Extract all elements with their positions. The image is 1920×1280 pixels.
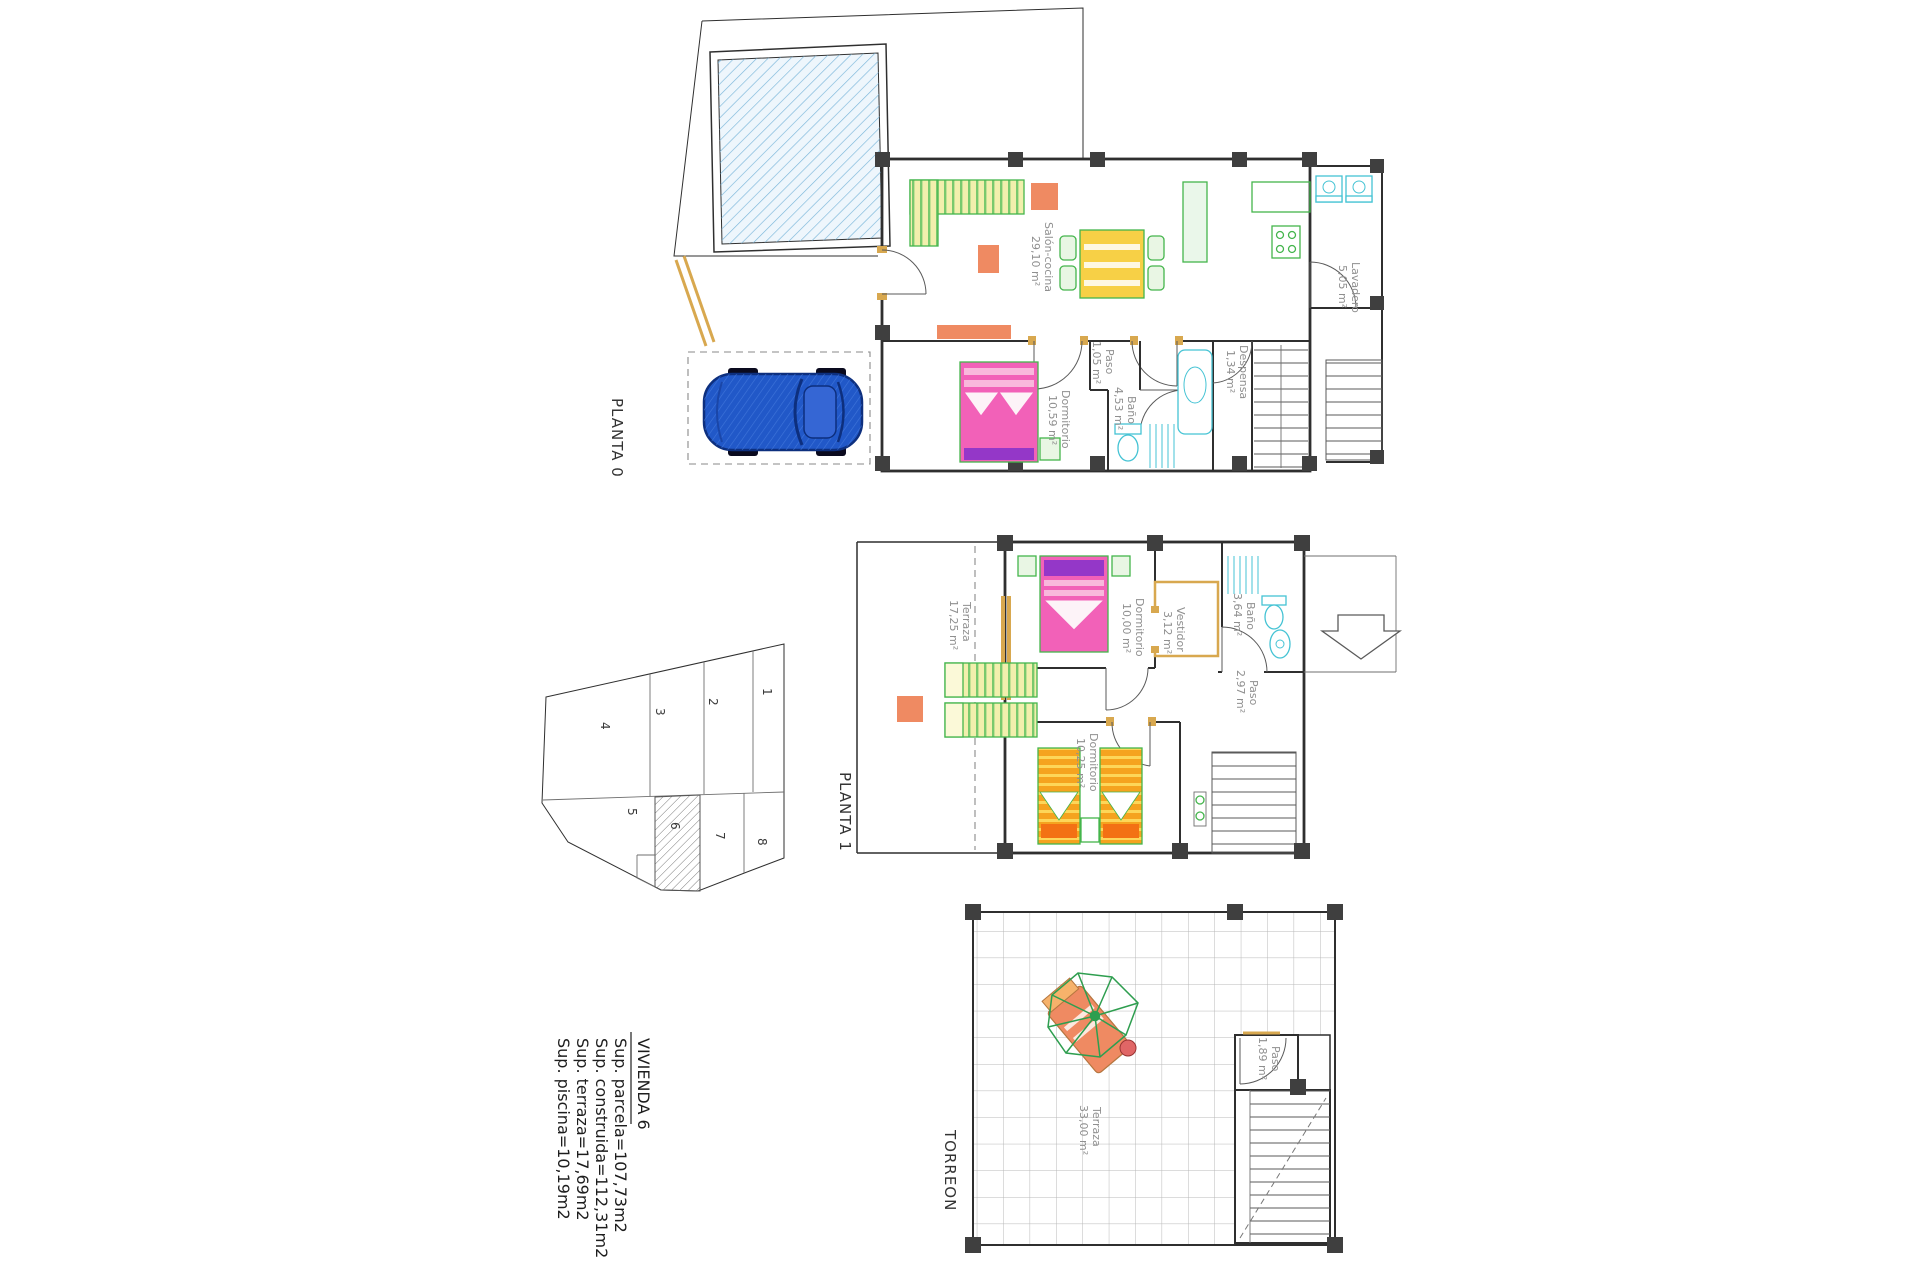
floorplan-sheet: PLANTA 0 Salón-cocina 29,10 m² Dormitori… (0, 0, 1920, 1280)
lot-number: 8 (755, 838, 769, 846)
room-area: 4,53 m² (1112, 387, 1125, 430)
stove (1272, 226, 1300, 258)
laundry-machines (1316, 176, 1372, 202)
pillow (964, 448, 1034, 460)
planta0-plan: PLANTA 0 Salón-cocina 29,10 m² Dormitori… (608, 8, 1384, 478)
entry-arrow-icon (1322, 615, 1400, 659)
room-area: 29,10 m² (1029, 236, 1042, 286)
torreon-plan: TORREON Terraza 33,00 m² Paso 1,89 m² (941, 904, 1343, 1253)
bedroom0-bed (960, 362, 1060, 462)
bedside-table (1081, 818, 1099, 842)
kitchen (1183, 182, 1310, 262)
door-arc (1132, 341, 1177, 386)
lot-number: 4 (598, 722, 612, 730)
summary-line: Sup. terraza=17,69m2 (573, 1038, 592, 1221)
summary-block: VIVIENDA 6 Sup. parcela=107,73m2 Sup. co… (554, 1032, 653, 1258)
highlighted-lot-6 (655, 795, 700, 891)
planta0-title: PLANTA 0 (608, 398, 626, 478)
kitchen-counter (1183, 182, 1207, 262)
room-label: Paso (1247, 680, 1260, 706)
room-label: Terraza (960, 601, 973, 642)
terrace-table (897, 696, 923, 722)
summary-line: Sup. construida=112,31m2 (592, 1038, 611, 1258)
shower-mat (1150, 424, 1174, 468)
nightstand (1018, 556, 1036, 576)
sideboard (937, 325, 1011, 339)
room-area: 33,00 m² (1077, 1105, 1090, 1155)
room-area: 2,97 m² (1234, 670, 1247, 713)
kitchen-counter (1252, 182, 1310, 212)
stair-rail (1194, 792, 1206, 826)
room-label: Despensa (1237, 345, 1250, 399)
room-area: 10,25 m² (1074, 738, 1087, 788)
pillow (1103, 824, 1139, 838)
door-arc (1106, 668, 1148, 710)
interior-stairs (1212, 752, 1296, 853)
room-label: Terraza (1090, 1106, 1103, 1147)
room-area: 5,05 m² (1336, 265, 1349, 308)
roof-table (1120, 1040, 1136, 1056)
room-label: Vestidor (1174, 607, 1187, 652)
side-table (1031, 183, 1058, 210)
room-label: Baño (1244, 602, 1257, 630)
planta1-title: PLANTA 1 (836, 772, 854, 852)
room-label: Dormitorio (1059, 390, 1072, 449)
carport (688, 352, 870, 464)
dining-set (1060, 230, 1164, 298)
side-table (978, 245, 999, 273)
room-area: 10,00 m² (1120, 603, 1133, 653)
torreon-title: TORREON (941, 1129, 959, 1211)
chair (1148, 266, 1164, 290)
summary-line: Sup. parcela=107,73m2 (611, 1038, 630, 1233)
room-area: 3,12 m² (1161, 611, 1174, 654)
swimming-pool (710, 44, 890, 252)
site-key-plan: 1 2 3 4 5 6 7 8 (542, 644, 784, 891)
door-arc (882, 250, 926, 294)
planta1-plan: PLANTA 1 Terraza 17,25 m² Dormitorio 10,… (836, 535, 1400, 859)
chair (1148, 236, 1164, 260)
summary-title: VIVIENDA 6 (634, 1038, 653, 1130)
room-label: Dormitorio (1087, 733, 1100, 792)
sofa-chaise (910, 180, 938, 246)
lot-number: 2 (706, 698, 720, 706)
chair (1060, 236, 1076, 260)
torreon-stairwell (1235, 1090, 1330, 1243)
lot-number: 1 (760, 688, 774, 696)
nightstand (1112, 556, 1130, 576)
entry-landing (1304, 556, 1396, 672)
lot-number: 5 (625, 808, 639, 816)
room-label: Dormitorio (1133, 598, 1146, 657)
room-area: 1,34 m² (1224, 350, 1237, 393)
room-label: Lavadero (1349, 262, 1362, 313)
lot-number: 7 (713, 832, 727, 840)
toilet (1262, 596, 1286, 605)
room-label: Baño (1125, 396, 1138, 424)
bathtub (1178, 350, 1212, 434)
entrance-gate (676, 256, 714, 346)
exterior-stairs (1326, 360, 1382, 460)
lot-number: 6 (668, 822, 682, 830)
pillow (1041, 824, 1077, 838)
door-arc (1034, 341, 1082, 389)
summary-line: Sup. piscina=10,19m2 (554, 1038, 573, 1220)
bedroom1-bed (1018, 556, 1130, 652)
lot-number: 3 (653, 708, 667, 716)
room-label: Salón-cocina (1042, 222, 1055, 292)
room-area: 1,05 m² (1090, 341, 1103, 384)
room-area: 3,64 m² (1231, 593, 1244, 636)
shower (1228, 556, 1258, 594)
room-label: Paso (1103, 349, 1116, 375)
room-area: 10,59 m² (1046, 395, 1059, 445)
chair (1060, 266, 1076, 290)
room-area: 1,89 m² (1256, 1037, 1269, 1080)
room-area: 17,25 m² (947, 600, 960, 650)
car (704, 368, 862, 456)
sink (1270, 630, 1290, 658)
room-label: Paso (1269, 1046, 1282, 1072)
pillow (1044, 560, 1104, 576)
